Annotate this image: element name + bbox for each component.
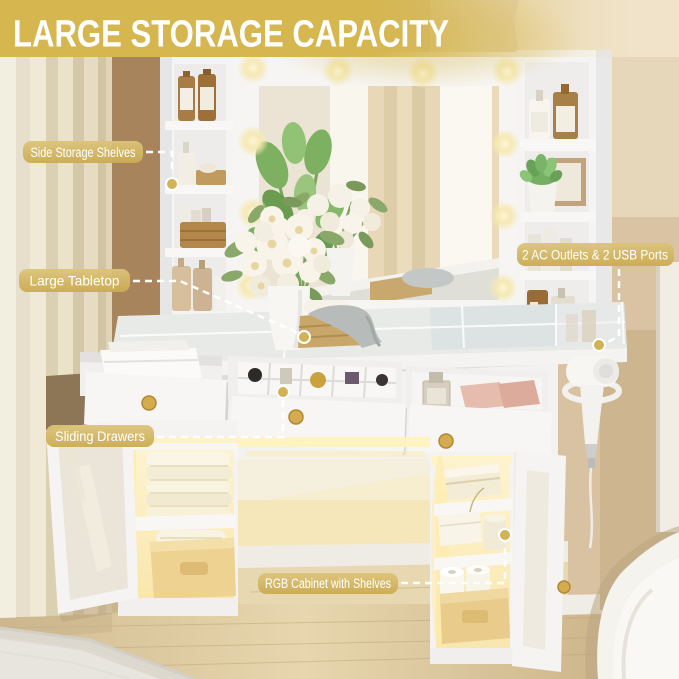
svg-text:Side Storage Shelves: Side Storage Shelves bbox=[31, 145, 136, 160]
svg-text:Sliding Drawers: Sliding Drawers bbox=[55, 429, 145, 444]
svg-text:2 AC Outlets & 2 USB Ports: 2 AC Outlets & 2 USB Ports bbox=[522, 248, 668, 263]
svg-text:RGB Cabinet with Shelves: RGB Cabinet with Shelves bbox=[265, 576, 391, 591]
svg-text:Large Tabletop: Large Tabletop bbox=[30, 273, 120, 289]
svg-text:LARGE STORAGE CAPACITY: LARGE STORAGE CAPACITY bbox=[13, 14, 449, 56]
